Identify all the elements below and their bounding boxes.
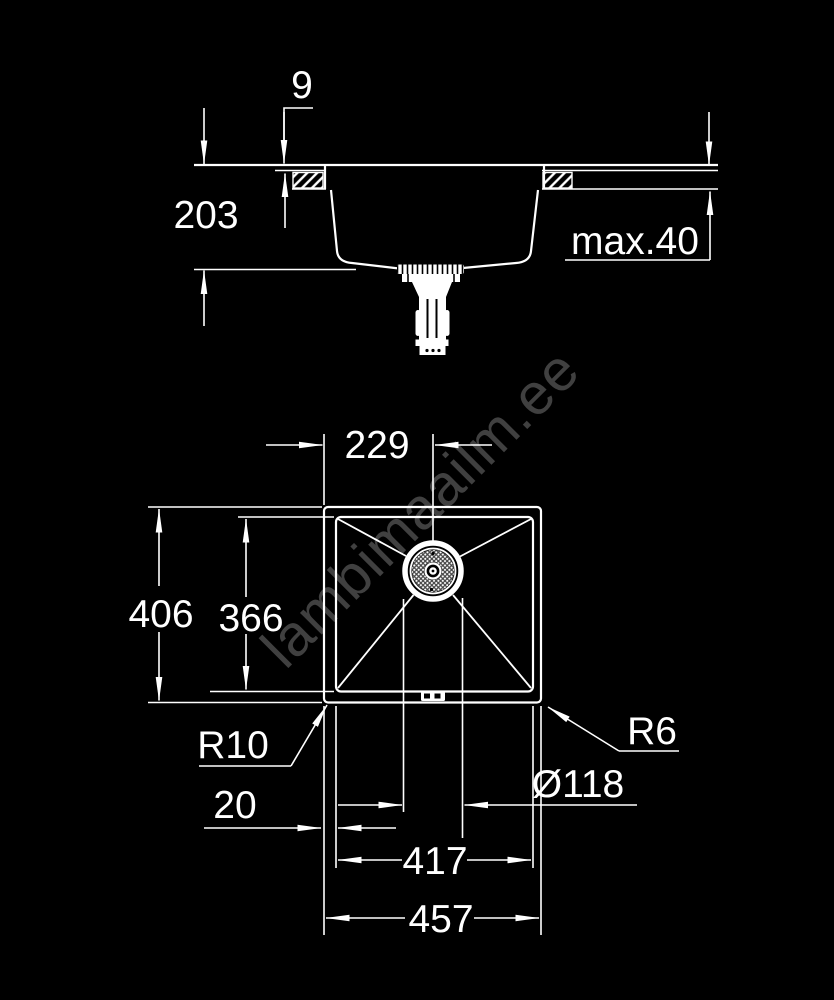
dim-label-bowl-depth-plan: 366 — [218, 597, 283, 640]
counter-section-right — [543, 173, 572, 189]
dim-label-drain-diameter: Ø118 — [532, 763, 625, 806]
dim-label-counter-thickness: max.40 — [571, 220, 699, 263]
drain-strainer — [405, 543, 461, 599]
sink-technical-drawing-page: lambimaailm.ee — [0, 0, 834, 1000]
dim-label-bowl-width: 417 — [402, 840, 467, 883]
overflow-slot — [421, 692, 445, 702]
dim-label-outer-width: 457 — [408, 898, 473, 941]
dim-label-rim-height: 9 — [291, 64, 313, 107]
dim-label-bowl-corner-radius: R10 — [197, 724, 269, 767]
dim-label-outer-depth: 406 — [128, 593, 193, 636]
dim-label-bowl-depth-side: 203 — [173, 194, 238, 237]
dim-label-rim-offset: 20 — [213, 784, 256, 827]
counter-section-left — [293, 173, 323, 189]
sink-technical-drawing: lambimaailm.ee — [0, 0, 834, 1000]
dim-label-outer-corner-radius: R6 — [627, 710, 677, 753]
dim-label-drain-center-offset: 229 — [344, 424, 409, 467]
